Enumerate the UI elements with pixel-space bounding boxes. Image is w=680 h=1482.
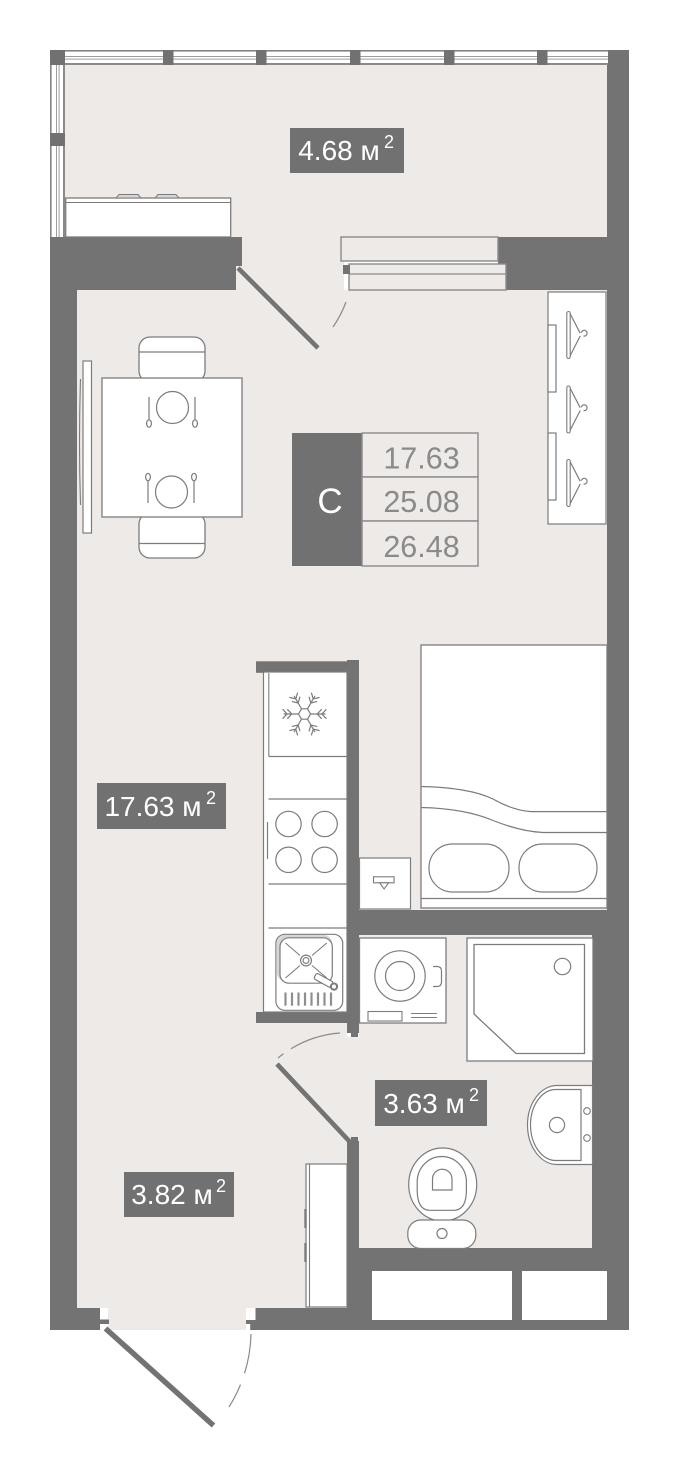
svg-text:25.08: 25.08 [383,485,459,519]
svg-text:2: 2 [384,132,394,152]
svg-text:17.63 м: 17.63 м [104,791,201,822]
svg-text:2: 2 [469,1085,479,1105]
svg-text:С: С [317,482,342,521]
svg-text:3.63 м: 3.63 м [383,1088,465,1119]
svg-text:3.82 м: 3.82 м [131,1179,213,1210]
svg-text:2: 2 [216,1176,226,1196]
svg-text:17.63: 17.63 [383,442,459,476]
svg-text:2: 2 [206,788,216,808]
svg-text:4.68 м: 4.68 м [298,135,380,166]
svg-text:26.48: 26.48 [383,530,459,564]
